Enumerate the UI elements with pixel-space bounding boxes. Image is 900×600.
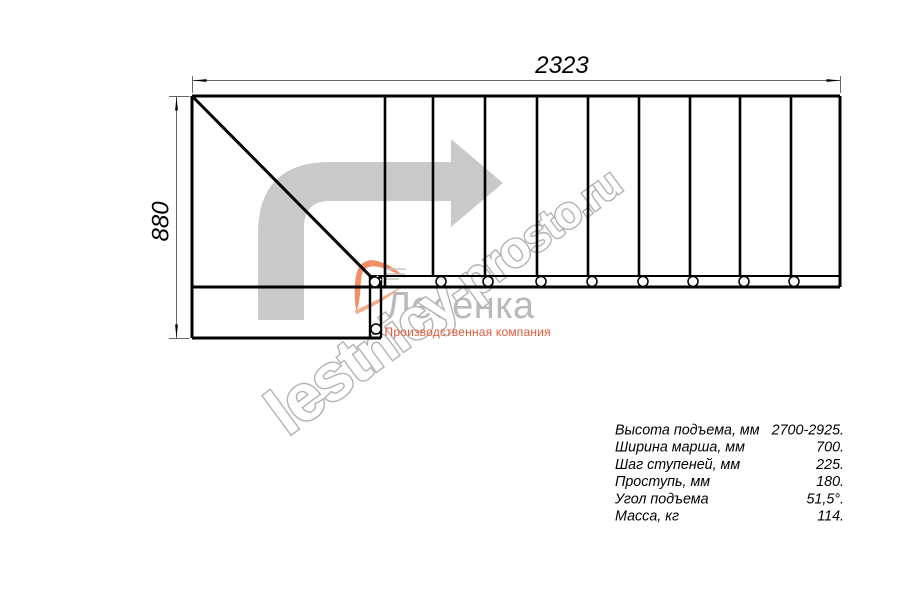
svg-text:114.: 114. xyxy=(817,509,844,525)
svg-text:Производственная компания: Производственная компания xyxy=(385,325,551,339)
svg-text:2700-2925.: 2700-2925. xyxy=(771,423,844,439)
svg-text:51,5°.: 51,5°. xyxy=(806,491,844,507)
svg-text:Шаг ступеней, мм: Шаг ступеней, мм xyxy=(615,457,740,473)
svg-text:Угол подъема: Угол подъема xyxy=(614,491,709,507)
svg-text:Проступь, мм: Проступь, мм xyxy=(615,474,710,490)
svg-text:225.: 225. xyxy=(815,457,844,473)
svg-text:Высота подъема, мм: Высота подъема, мм xyxy=(615,423,760,439)
svg-text:180.: 180. xyxy=(816,474,844,490)
svg-text:880: 880 xyxy=(148,201,175,242)
svg-text:Ширина марша, мм: Ширина марша, мм xyxy=(615,440,745,456)
svg-text:Масса, кг: Масса, кг xyxy=(615,509,679,525)
svg-text:700.: 700. xyxy=(816,440,844,456)
svg-text:2323: 2323 xyxy=(534,52,589,79)
